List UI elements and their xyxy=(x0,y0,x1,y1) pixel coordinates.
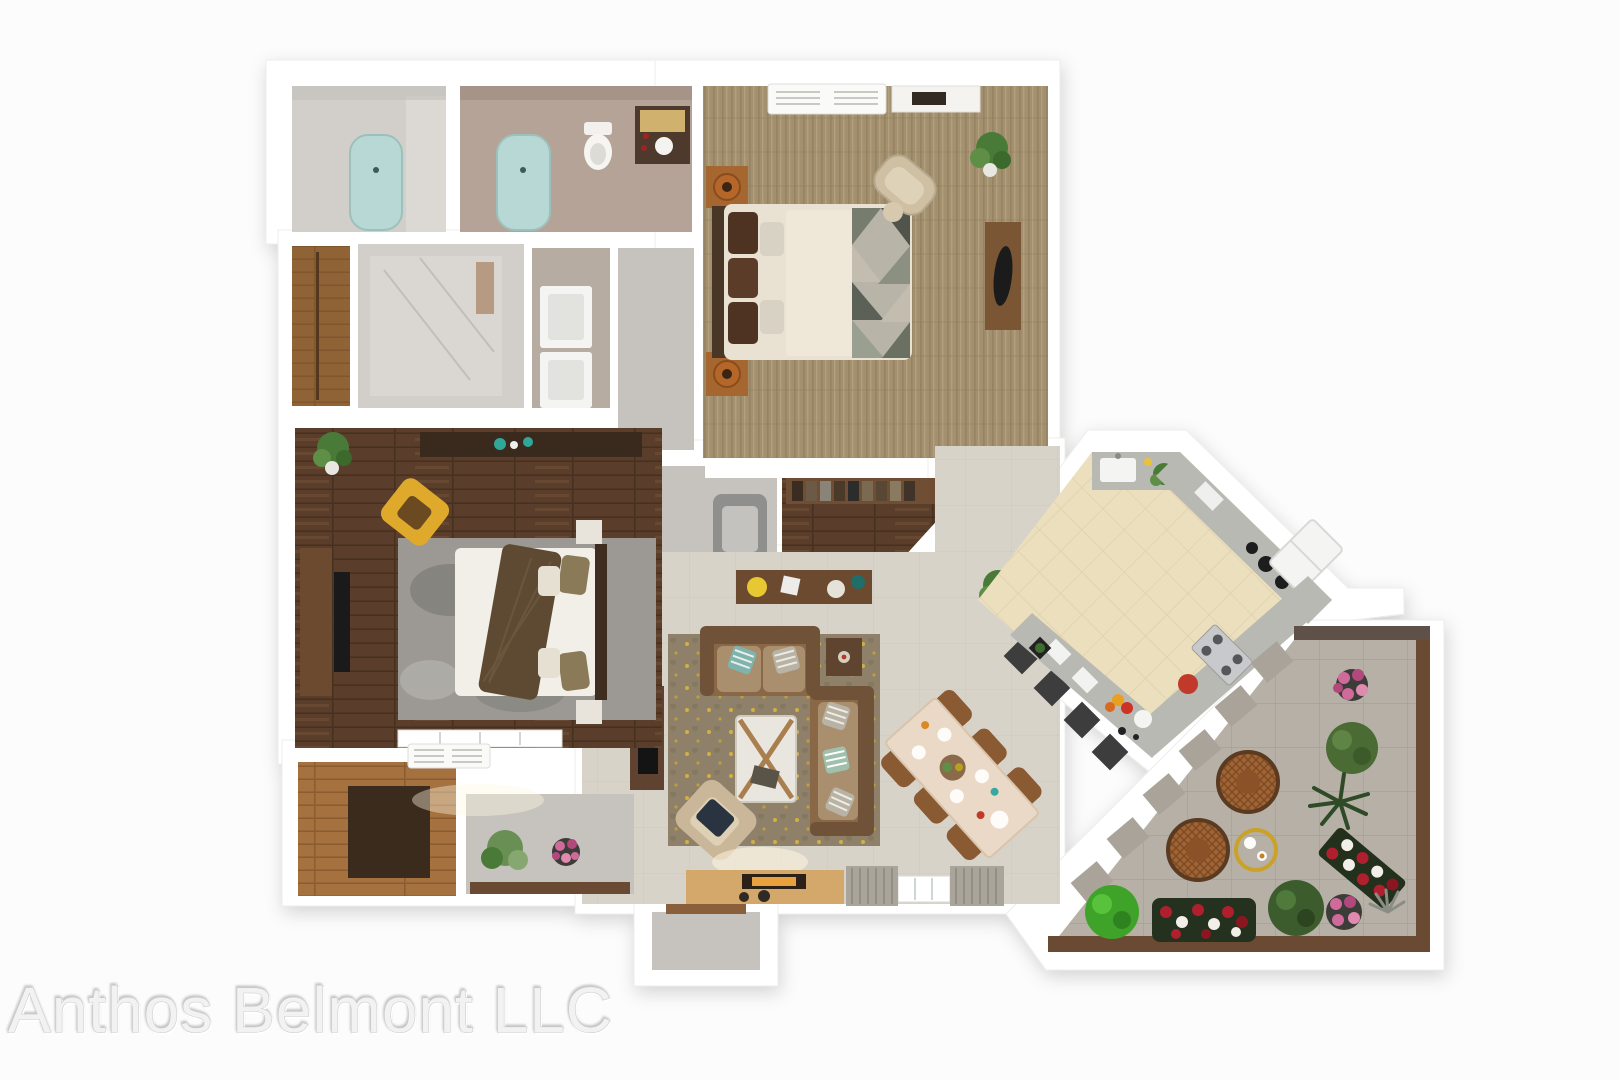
patio-top-edge xyxy=(1294,626,1430,640)
nightstand xyxy=(706,166,748,208)
plate xyxy=(1244,837,1256,849)
pillow xyxy=(728,258,758,298)
coffee-table xyxy=(736,716,796,802)
patio-chair xyxy=(1218,752,1278,812)
bathtub xyxy=(350,135,402,230)
vanity-light-glow xyxy=(640,110,685,132)
entry-floor xyxy=(652,912,760,970)
front-door xyxy=(666,904,746,914)
counter-decor xyxy=(1118,727,1126,735)
sofa-arm xyxy=(806,626,820,696)
toilet xyxy=(584,122,612,170)
side-table xyxy=(826,638,862,676)
nightstand xyxy=(576,700,602,724)
tub-drain xyxy=(520,167,526,173)
dryer-lid xyxy=(548,360,584,400)
round-pillow xyxy=(883,202,903,222)
green-bush xyxy=(1326,722,1378,774)
decor-plate xyxy=(747,577,767,597)
plate xyxy=(1134,710,1152,728)
plant-pot xyxy=(325,461,339,475)
pink-flower-bush xyxy=(1326,894,1362,930)
porch-wood-edge xyxy=(470,882,630,894)
cookware xyxy=(1246,542,1258,554)
flames xyxy=(752,877,796,886)
window xyxy=(898,876,950,902)
entry-porch xyxy=(652,904,760,970)
dresser xyxy=(420,432,642,457)
sink xyxy=(655,137,673,155)
shower-glass-panel xyxy=(406,96,446,232)
pillow xyxy=(760,222,784,256)
patio-wood-border xyxy=(1416,640,1430,952)
ac-unit xyxy=(408,744,490,768)
hearth-decor xyxy=(758,890,770,902)
sofa-back xyxy=(700,626,820,644)
candle xyxy=(641,145,647,151)
watermark-text: Anthos Belmont LLC xyxy=(8,974,613,1046)
pillow xyxy=(538,566,560,596)
kitchen-sink xyxy=(1100,458,1136,482)
decor-dish xyxy=(851,575,865,589)
sofa-arm xyxy=(810,686,874,700)
curtain xyxy=(846,866,898,906)
bathtub xyxy=(497,135,550,230)
curtain xyxy=(950,866,1004,906)
decor-teal xyxy=(494,438,506,450)
hall-closet-floor xyxy=(618,248,694,450)
dark-green-bush xyxy=(1268,880,1324,936)
patterned-quilt xyxy=(852,208,910,358)
throw-pillow xyxy=(822,746,850,774)
pillow xyxy=(557,554,590,596)
pillow xyxy=(728,212,758,254)
candle xyxy=(643,133,649,139)
patio-chair xyxy=(1168,820,1228,880)
console-table xyxy=(736,570,872,604)
tub-drain xyxy=(373,167,379,173)
ac-unit xyxy=(768,84,886,114)
decor-sphere xyxy=(827,580,845,598)
sofa xyxy=(810,686,874,836)
faucet xyxy=(1115,453,1121,459)
dresser xyxy=(985,222,1021,330)
bedroom-2 xyxy=(295,428,662,748)
wall-shelf xyxy=(892,86,980,112)
bright-green-bush xyxy=(1085,885,1139,939)
floor-plan-render: Anthos Belmont LLC xyxy=(0,0,1620,1080)
pillow xyxy=(538,648,560,678)
bed-2 xyxy=(455,543,607,701)
wardrobe-closet xyxy=(292,246,350,406)
washer-lid xyxy=(548,294,584,340)
shower-bench xyxy=(476,262,494,314)
headboard xyxy=(712,206,726,358)
tv-flat xyxy=(334,572,350,672)
plant-pot xyxy=(983,163,997,177)
floor-plan-canvas: Anthos Belmont LLC xyxy=(0,0,1620,1080)
pink-flower-plant xyxy=(552,838,580,866)
walk-in-shower-room xyxy=(358,244,524,408)
master-bed xyxy=(712,204,912,360)
bathroom-2 xyxy=(460,86,692,232)
wardrobe-divider xyxy=(316,252,319,400)
decor-box xyxy=(780,576,800,596)
shelf-decor xyxy=(912,92,946,105)
sofa-arm xyxy=(810,822,874,836)
sofa xyxy=(700,626,820,696)
laundry-closet xyxy=(532,248,610,408)
lemons xyxy=(1144,458,1152,466)
pillow xyxy=(557,650,590,692)
bathroom-1-wall-shade xyxy=(292,86,446,100)
pillow xyxy=(760,300,784,334)
storage-room xyxy=(298,762,456,896)
window-light xyxy=(412,784,544,816)
pillow xyxy=(728,302,758,344)
sofa-back xyxy=(858,686,874,836)
fireplace-console xyxy=(686,870,844,904)
headboard xyxy=(595,544,607,700)
decor-teal xyxy=(523,437,533,447)
bathroom-vanity xyxy=(635,106,690,164)
decor-white xyxy=(510,441,518,449)
counter-decor xyxy=(1133,734,1139,740)
bathroom-2-wall-shade xyxy=(460,86,692,100)
hanging-clothes xyxy=(792,481,915,501)
rug-marbling xyxy=(400,660,460,700)
rose-bed xyxy=(1152,898,1256,942)
duvet xyxy=(786,210,856,356)
nightstand xyxy=(576,520,602,544)
hearth-decor xyxy=(739,892,749,902)
gray-armchair xyxy=(713,494,767,560)
red-pot xyxy=(1178,674,1198,694)
bathroom-1 xyxy=(292,86,446,232)
sofa-arm xyxy=(700,626,714,696)
master-bedroom xyxy=(703,84,1048,458)
